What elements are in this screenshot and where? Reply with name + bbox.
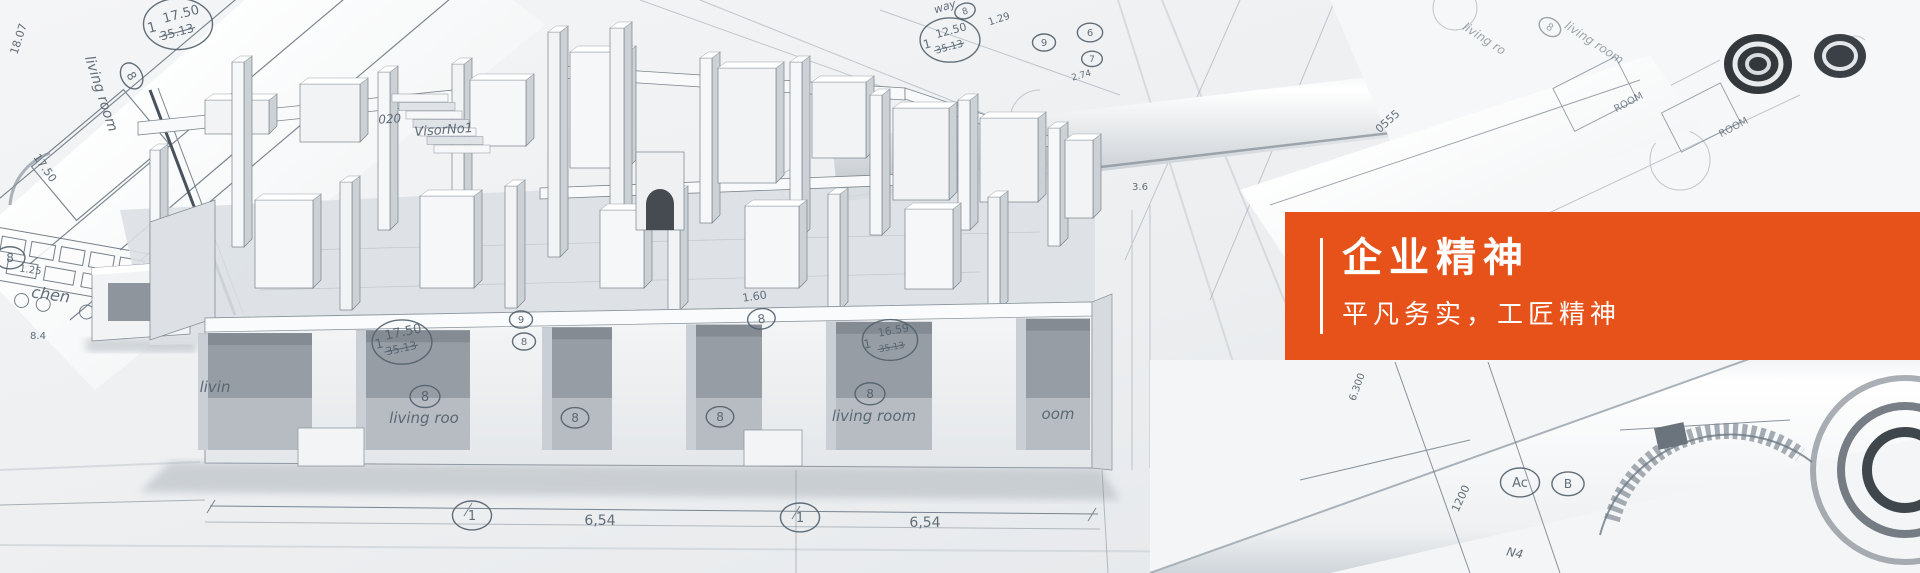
- wall-slab: [905, 203, 961, 289]
- wall-slab: [700, 52, 720, 223]
- svg-text:8: 8: [866, 387, 874, 401]
- model-facade: [198, 294, 1112, 470]
- facade-box: [298, 428, 364, 466]
- blueprint-label: 020: [378, 111, 402, 127]
- wall-slab: [718, 62, 784, 183]
- wall-slab: [420, 190, 482, 288]
- wall-slab: [870, 89, 890, 235]
- wall-slab: [1065, 134, 1101, 218]
- hero-banner: 18.0717.5035.131living room817.5081.25ch…: [0, 0, 1920, 573]
- arch-doorway: [646, 189, 674, 230]
- svg-text:living room: living room: [832, 407, 916, 425]
- wall-slab: [505, 180, 525, 308]
- facade-box: [744, 430, 802, 466]
- svg-text:8.4: 8.4: [30, 331, 46, 342]
- wall-slab: [300, 78, 368, 142]
- facade-opening: [542, 327, 612, 450]
- svg-text:9: 9: [518, 315, 524, 326]
- quote-title: 企业精神: [1342, 238, 1530, 278]
- blueprint-label: 3.6: [1132, 182, 1148, 193]
- facade-opening: [826, 322, 932, 450]
- wall-slab: [378, 66, 398, 230]
- svg-text:1: 1: [468, 509, 476, 524]
- svg-text:1: 1: [796, 511, 804, 526]
- wall-slab: [812, 76, 874, 158]
- svg-text:6: 6: [1087, 28, 1093, 39]
- svg-text:oom: oom: [1042, 405, 1075, 423]
- wall-slab: [255, 194, 321, 288]
- svg-text:living roo: living roo: [389, 409, 459, 427]
- wall-slab: [980, 112, 1046, 202]
- wall-slab: [745, 200, 807, 288]
- svg-text:8: 8: [6, 251, 14, 265]
- svg-text:Ac: Ac: [1512, 476, 1528, 491]
- svg-text:B: B: [1564, 477, 1572, 491]
- svg-text:8: 8: [521, 337, 527, 348]
- quote-divider: [1320, 238, 1323, 334]
- svg-text:6,54: 6,54: [909, 515, 940, 531]
- svg-text:3.6: 3.6: [1132, 182, 1148, 193]
- svg-text:7: 7: [1089, 55, 1095, 65]
- blueprint-label: oom: [1042, 405, 1075, 423]
- svg-text:8: 8: [421, 390, 429, 405]
- quote-panel[interactable]: 企业精神 平凡务实，工匠精神: [1285, 212, 1920, 360]
- svg-text:8: 8: [571, 411, 579, 425]
- svg-text:020: 020: [378, 111, 402, 127]
- svg-text:9: 9: [1041, 38, 1047, 49]
- svg-text:8: 8: [716, 410, 724, 424]
- wall-slab: [610, 22, 632, 233]
- facade-side: [1092, 294, 1112, 470]
- svg-text:livin: livin: [200, 378, 231, 396]
- wall-slab: [470, 74, 534, 146]
- wall-slab: [340, 176, 360, 310]
- wall-slab: [893, 102, 957, 200]
- wall-slab: [828, 188, 848, 310]
- blueprint-label: livin: [200, 378, 231, 396]
- wall-slab: [988, 191, 1008, 309]
- wall-slab: [232, 56, 252, 247]
- facade-opening: [1016, 319, 1090, 450]
- blueprint-label: living roo: [389, 409, 459, 427]
- wall-slab: [548, 26, 568, 257]
- blueprint-label: 6,54: [909, 515, 940, 531]
- blueprint-label: 6,54: [584, 513, 615, 529]
- svg-text:6,54: 6,54: [584, 513, 615, 529]
- blueprint-label: 8.4: [30, 331, 46, 342]
- blueprint-label: living room: [832, 407, 916, 425]
- quote-subtitle: 平凡务实，工匠精神: [1342, 300, 1621, 328]
